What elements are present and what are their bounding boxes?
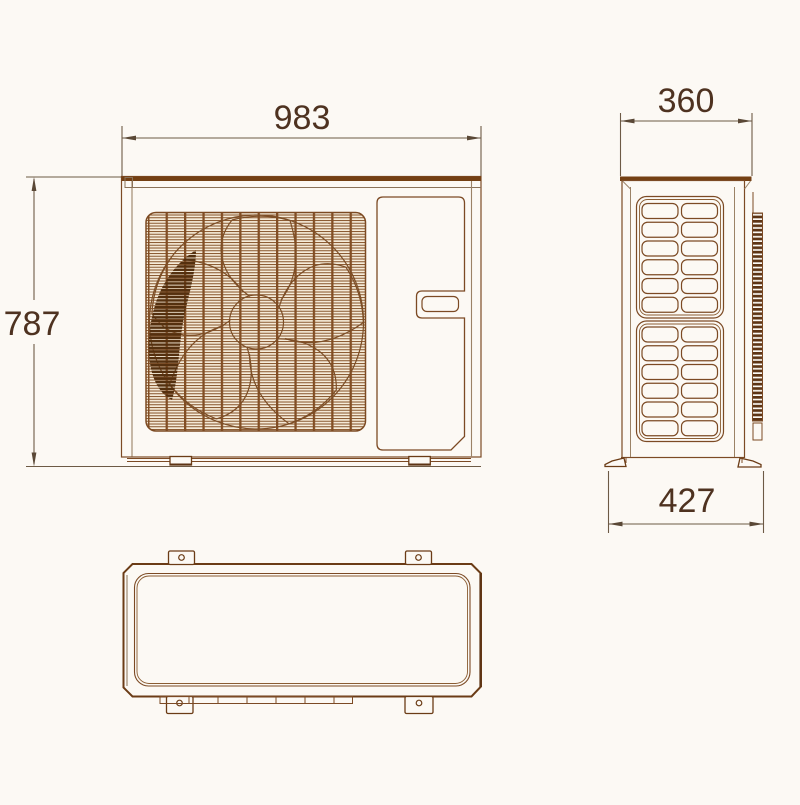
svg-text:427: 427 — [659, 482, 716, 520]
svg-text:983: 983 — [274, 99, 331, 137]
svg-text:787: 787 — [4, 305, 61, 343]
svg-text:360: 360 — [658, 82, 715, 120]
